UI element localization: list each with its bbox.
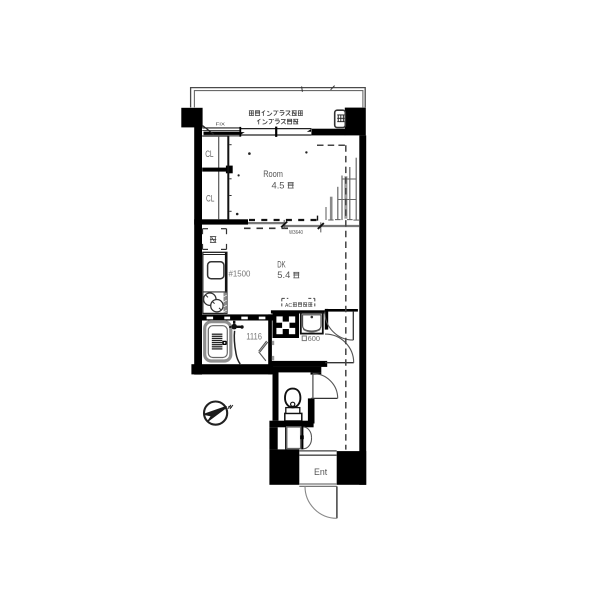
svg-text:CL: CL [206,193,215,204]
svg-text:AC: AC [285,303,292,309]
svg-text:Room: Room [263,169,283,179]
svg-text:DK: DK [277,260,286,270]
svg-text:600: 600 [308,336,321,343]
svg-text:4.5: 4.5 [272,181,285,191]
svg-text:FIX: FIX [216,121,226,127]
svg-text:5.4: 5.4 [277,270,290,280]
svg-text:Ent: Ent [314,467,328,477]
svg-text:CL: CL [205,149,214,160]
svg-text:1116: 1116 [246,332,262,342]
svg-text:W3640: W3640 [289,230,303,236]
svg-text:#1500: #1500 [229,269,251,279]
